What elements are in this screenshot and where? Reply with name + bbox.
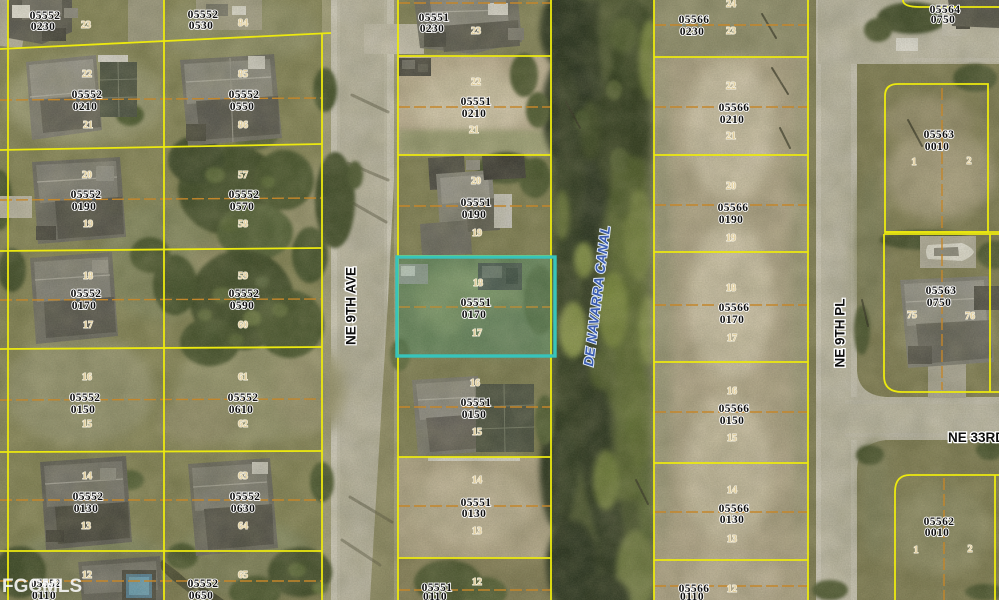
svg-text:05552: 05552 (73, 491, 104, 503)
svg-text:17: 17 (727, 333, 737, 344)
svg-text:05552: 05552 (188, 578, 219, 590)
svg-text:22: 22 (82, 69, 92, 80)
svg-text:0150: 0150 (720, 415, 745, 427)
svg-text:13: 13 (727, 534, 737, 545)
svg-text:05563: 05563 (924, 129, 955, 141)
svg-text:23: 23 (726, 26, 736, 37)
svg-text:0590: 0590 (230, 300, 255, 312)
svg-text:16: 16 (470, 378, 480, 389)
svg-text:21: 21 (469, 125, 479, 136)
svg-text:FGCMLS: FGCMLS (2, 576, 82, 597)
svg-text:64: 64 (238, 521, 248, 532)
svg-text:13: 13 (81, 521, 91, 532)
svg-text:05552: 05552 (71, 288, 102, 300)
svg-text:18: 18 (83, 271, 93, 282)
svg-text:0610: 0610 (229, 404, 254, 416)
svg-text:0190: 0190 (719, 214, 744, 226)
svg-text:05551: 05551 (461, 397, 492, 409)
svg-text:2: 2 (967, 156, 972, 167)
svg-text:0570: 0570 (230, 201, 255, 213)
svg-text:05551: 05551 (461, 297, 492, 309)
svg-text:05552: 05552 (229, 89, 260, 101)
svg-text:05551: 05551 (461, 197, 492, 209)
svg-text:61: 61 (238, 372, 248, 383)
svg-text:05552: 05552 (230, 491, 261, 503)
svg-text:22: 22 (726, 81, 736, 92)
svg-text:05552: 05552 (228, 392, 259, 404)
svg-text:20: 20 (471, 176, 481, 187)
svg-text:13: 13 (472, 526, 482, 537)
svg-text:0230: 0230 (680, 26, 705, 38)
svg-text:0630: 0630 (231, 503, 256, 515)
svg-text:17: 17 (83, 320, 93, 331)
svg-text:58: 58 (238, 219, 248, 230)
svg-text:1: 1 (912, 157, 917, 168)
svg-text:2: 2 (968, 544, 973, 555)
svg-text:20: 20 (82, 170, 92, 181)
svg-text:0650: 0650 (189, 590, 214, 600)
svg-text:0010: 0010 (925, 141, 950, 153)
svg-text:05566: 05566 (719, 302, 750, 314)
svg-text:0230: 0230 (31, 21, 56, 33)
svg-text:NE 33RD: NE 33RD (948, 430, 999, 445)
svg-text:22: 22 (471, 77, 481, 88)
svg-text:85: 85 (238, 69, 248, 80)
svg-text:0210: 0210 (73, 101, 98, 113)
svg-text:17: 17 (472, 328, 482, 339)
svg-text:16: 16 (727, 386, 737, 397)
svg-text:19: 19 (472, 228, 482, 239)
svg-text:05552: 05552 (72, 89, 103, 101)
svg-text:05566: 05566 (719, 403, 750, 415)
svg-text:23: 23 (471, 26, 481, 37)
svg-text:0130: 0130 (74, 503, 99, 515)
svg-text:05563: 05563 (926, 285, 957, 297)
svg-text:15: 15 (82, 419, 92, 430)
svg-text:75: 75 (907, 310, 917, 321)
svg-text:0110: 0110 (680, 591, 704, 600)
svg-text:63: 63 (238, 471, 248, 482)
svg-text:0190: 0190 (72, 201, 97, 213)
svg-text:12: 12 (472, 577, 482, 588)
svg-text:18: 18 (473, 278, 483, 289)
svg-text:05551: 05551 (461, 96, 492, 108)
svg-text:05552: 05552 (70, 392, 101, 404)
svg-text:57: 57 (238, 170, 248, 181)
svg-text:21: 21 (83, 120, 93, 131)
svg-text:0110: 0110 (423, 591, 447, 600)
svg-text:19: 19 (726, 233, 736, 244)
svg-text:12: 12 (727, 584, 737, 595)
svg-text:0130: 0130 (720, 514, 745, 526)
svg-text:0170: 0170 (462, 309, 487, 321)
svg-text:05566: 05566 (679, 14, 710, 26)
svg-text:19: 19 (83, 219, 93, 230)
svg-text:60: 60 (238, 320, 248, 331)
svg-text:0210: 0210 (462, 108, 487, 120)
svg-text:18: 18 (726, 283, 736, 294)
svg-text:76: 76 (965, 311, 975, 322)
svg-text:05552: 05552 (229, 288, 260, 300)
svg-text:0150: 0150 (462, 409, 487, 421)
svg-text:0170: 0170 (72, 300, 97, 312)
svg-text:23: 23 (81, 20, 91, 31)
svg-text:15: 15 (727, 433, 737, 444)
svg-text:0550: 0550 (230, 101, 255, 113)
svg-text:0010: 0010 (925, 527, 950, 539)
svg-text:05566: 05566 (718, 202, 749, 214)
svg-text:24: 24 (726, 0, 736, 10)
svg-text:0750: 0750 (927, 297, 952, 309)
svg-text:86: 86 (238, 120, 248, 131)
svg-text:65: 65 (238, 570, 248, 581)
svg-text:0170: 0170 (720, 314, 745, 326)
svg-text:0210: 0210 (720, 114, 745, 126)
svg-text:16: 16 (82, 372, 92, 383)
svg-text:59: 59 (238, 271, 248, 282)
svg-text:14: 14 (472, 475, 482, 486)
svg-text:15: 15 (472, 427, 482, 438)
svg-text:05566: 05566 (719, 102, 750, 114)
svg-text:0150: 0150 (71, 404, 96, 416)
svg-text:21: 21 (726, 131, 736, 142)
svg-text:0750: 0750 (931, 14, 956, 26)
svg-text:62: 62 (238, 419, 248, 430)
svg-text:0190: 0190 (462, 209, 487, 221)
svg-text:0130: 0130 (462, 508, 487, 520)
svg-text:12: 12 (82, 570, 92, 581)
svg-text:05552: 05552 (229, 189, 260, 201)
svg-text:NE 9TH AVE: NE 9TH AVE (344, 267, 359, 345)
svg-text:14: 14 (727, 485, 737, 496)
svg-text:0530: 0530 (189, 20, 214, 32)
svg-text:84: 84 (238, 18, 248, 29)
svg-text:05552: 05552 (71, 189, 102, 201)
svg-text:14: 14 (82, 471, 92, 482)
svg-text:NE 9TH PL: NE 9TH PL (833, 298, 848, 367)
svg-text:1: 1 (914, 545, 919, 556)
svg-text:0230: 0230 (420, 23, 445, 35)
svg-text:20: 20 (726, 181, 736, 192)
